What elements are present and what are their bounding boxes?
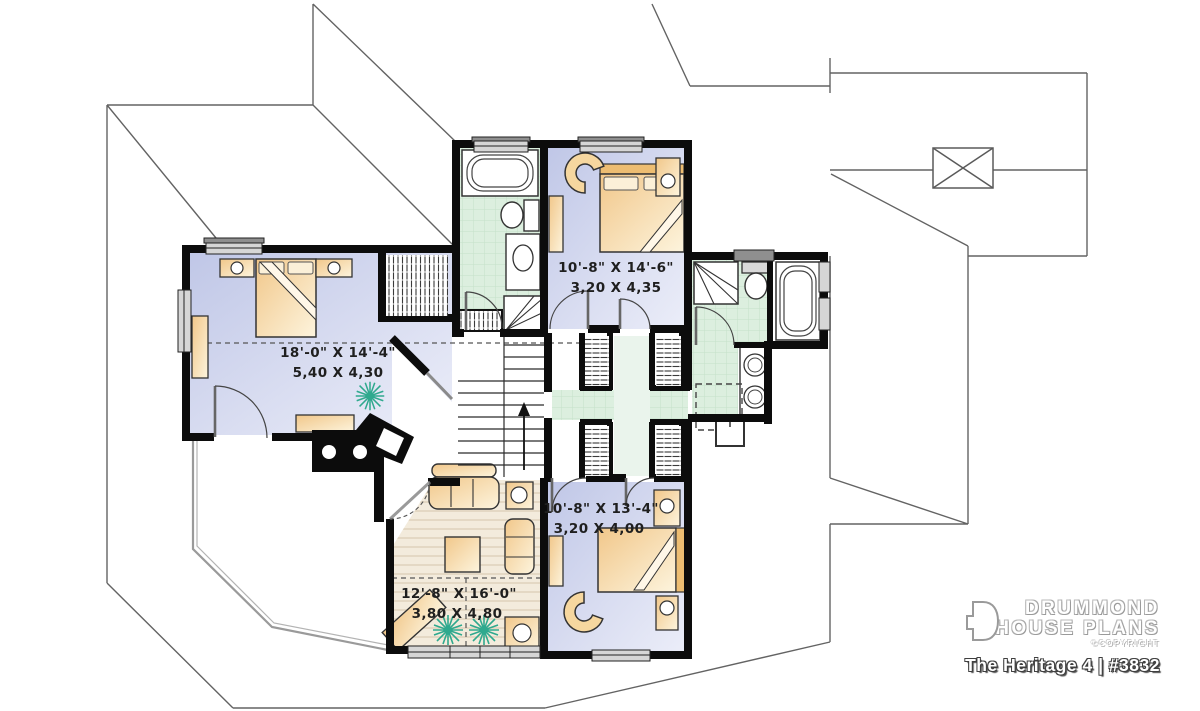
chimney xyxy=(933,148,993,188)
hall-mid-floor xyxy=(614,336,650,476)
plan-title: The Heritage 4 | #3832 xyxy=(965,655,1160,676)
brand-block: DRUMMOND HOUSE PLANS ©COPYRIGHT The Heri… xyxy=(965,599,1160,676)
nightstand xyxy=(656,596,678,630)
family-room-dim-metric: 3,80 X 4,80 xyxy=(412,606,503,622)
plant-icon xyxy=(356,382,385,411)
nightstand xyxy=(220,259,254,277)
master-bed xyxy=(256,259,316,337)
laundry-chute xyxy=(716,420,744,446)
dresser xyxy=(549,196,563,252)
ensuite-bathtub xyxy=(776,262,820,340)
brand-copyright: ©COPYRIGHT xyxy=(995,640,1160,648)
vanity-sink xyxy=(506,234,540,290)
bedroom-top-dim-metric: 3,20 X 4,35 xyxy=(571,280,662,296)
nightstand xyxy=(656,158,680,196)
corner-shower xyxy=(694,262,738,304)
drummond-logo-icon xyxy=(965,599,1001,645)
dresser xyxy=(192,316,208,378)
floor-plan-page: 18'-0" X 14'-4" 5,40 X 4,30 10'-8" X 14'… xyxy=(0,0,1200,711)
master-bedroom-dim-imperial: 18'-0" X 14'-4" xyxy=(280,345,396,361)
bedroom-bottom-dim-metric: 3,20 X 4,00 xyxy=(554,521,645,537)
toilet xyxy=(742,262,770,299)
bench xyxy=(296,415,354,432)
bedroom-bottom-bed xyxy=(598,528,686,592)
bathtub xyxy=(462,150,538,196)
master-bedroom-dim-metric: 5,40 X 4,30 xyxy=(293,365,384,381)
bedroom-top-dim-imperial: 10'-8" X 14'-6" xyxy=(558,260,674,276)
coffee-table xyxy=(445,537,480,572)
family-room-dim-imperial: 12'-8" X 16'-0" xyxy=(401,586,517,602)
brand-line1: DRUMMOND xyxy=(995,599,1160,619)
armchair xyxy=(505,519,534,574)
sofa xyxy=(429,464,499,509)
shower xyxy=(504,296,544,332)
dresser xyxy=(549,536,563,586)
bedroom-bottom-dim-imperial: 10'-8" X 13'-4" xyxy=(543,501,659,517)
ensuite-corridor-floor xyxy=(692,345,738,418)
stair-rail-hatch xyxy=(458,310,502,331)
side-table xyxy=(505,617,539,650)
side-table xyxy=(506,482,533,509)
nightstand xyxy=(316,259,352,277)
brand-line2: HOUSE PLANS xyxy=(995,619,1160,639)
balcony-edge xyxy=(193,441,388,650)
